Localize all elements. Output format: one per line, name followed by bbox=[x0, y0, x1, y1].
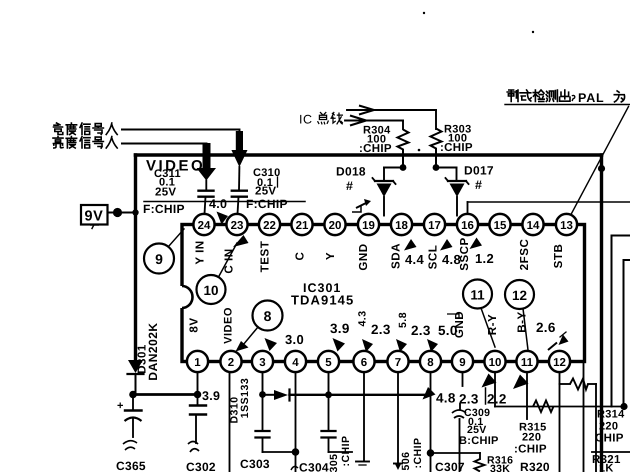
svg-text:CHIP: CHIP bbox=[595, 433, 624, 445]
svg-text:C365: C365 bbox=[116, 459, 146, 472]
svg-text:2.6: 2.6 bbox=[536, 320, 556, 335]
svg-text::CHIP: :CHIP bbox=[412, 437, 424, 468]
svg-text:SCL: SCL bbox=[427, 245, 440, 270]
svg-text:2FSC: 2FSC bbox=[518, 239, 531, 271]
svg-text::CHIP: :CHIP bbox=[359, 143, 392, 155]
svg-text:B-Y: B-Y bbox=[516, 311, 529, 332]
svg-text:STB: STB bbox=[552, 244, 565, 269]
svg-text:3.0: 3.0 bbox=[285, 332, 304, 347]
svg-text:14: 14 bbox=[527, 220, 540, 232]
svg-text:17: 17 bbox=[428, 220, 441, 232]
svg-text:2.3: 2.3 bbox=[371, 322, 391, 337]
svg-text:4.8: 4.8 bbox=[436, 391, 456, 406]
svg-text:24: 24 bbox=[198, 220, 211, 232]
svg-text:18: 18 bbox=[395, 220, 408, 232]
svg-text:5: 5 bbox=[325, 357, 332, 369]
svg-text:C307: C307 bbox=[435, 460, 465, 472]
svg-text:3: 3 bbox=[259, 357, 265, 369]
svg-text:7: 7 bbox=[395, 357, 401, 369]
svg-text:22: 22 bbox=[263, 220, 276, 232]
svg-text:SDA: SDA bbox=[390, 243, 403, 269]
svg-text:21: 21 bbox=[296, 220, 309, 232]
svg-text:23: 23 bbox=[231, 220, 244, 232]
svg-text::CHIP: :CHIP bbox=[514, 444, 547, 456]
svg-text:#: # bbox=[475, 178, 482, 192]
svg-text:SSCP: SSCP bbox=[458, 237, 471, 271]
svg-text:1: 1 bbox=[194, 357, 201, 369]
svg-text:6: 6 bbox=[361, 357, 367, 369]
svg-text:F:CHIP: F:CHIP bbox=[143, 202, 185, 216]
svg-text:20: 20 bbox=[329, 220, 342, 232]
svg-text:2.3: 2.3 bbox=[411, 323, 431, 338]
svg-text:2.2: 2.2 bbox=[487, 392, 507, 407]
svg-text:#: # bbox=[346, 179, 353, 193]
svg-text:11: 11 bbox=[470, 288, 485, 303]
svg-text:10: 10 bbox=[203, 283, 218, 298]
svg-text:15: 15 bbox=[494, 220, 507, 232]
svg-text:DAN202K: DAN202K bbox=[146, 322, 160, 380]
svg-text:4.0: 4.0 bbox=[209, 197, 227, 211]
svg-text:TDA9145: TDA9145 bbox=[291, 293, 354, 308]
svg-text:16: 16 bbox=[461, 220, 474, 232]
svg-text:9: 9 bbox=[155, 251, 163, 267]
svg-text:D017: D017 bbox=[464, 164, 494, 178]
svg-text:13: 13 bbox=[560, 220, 573, 232]
svg-text:R314: R314 bbox=[597, 409, 625, 421]
svg-text:33K: 33K bbox=[490, 463, 510, 472]
svg-text:5.8: 5.8 bbox=[397, 312, 409, 328]
svg-text:D018: D018 bbox=[336, 165, 366, 179]
svg-text:12: 12 bbox=[512, 288, 527, 303]
svg-text:C303: C303 bbox=[240, 457, 270, 471]
svg-text:4: 4 bbox=[292, 357, 299, 369]
svg-text:25V: 25V bbox=[155, 187, 176, 199]
svg-text:5.0: 5.0 bbox=[438, 323, 458, 338]
svg-text:2: 2 bbox=[228, 357, 234, 369]
svg-text:11: 11 bbox=[521, 357, 534, 369]
svg-text:4.3: 4.3 bbox=[357, 310, 369, 326]
svg-text:B:CHIP: B:CHIP bbox=[459, 435, 499, 447]
svg-text:1.2: 1.2 bbox=[475, 251, 494, 266]
svg-text:220: 220 bbox=[522, 432, 541, 444]
svg-text:506: 506 bbox=[400, 451, 412, 470]
svg-text:VIDEO: VIDEO bbox=[223, 307, 235, 344]
svg-text:19: 19 bbox=[362, 220, 375, 232]
svg-text:TEST: TEST bbox=[259, 241, 272, 273]
svg-text:3.9: 3.9 bbox=[202, 389, 220, 403]
svg-text:3.9: 3.9 bbox=[330, 321, 350, 336]
svg-text:9: 9 bbox=[459, 357, 465, 369]
svg-text:12: 12 bbox=[553, 357, 566, 369]
svg-text:220: 220 bbox=[599, 421, 618, 433]
svg-text:Y IN: Y IN bbox=[194, 240, 207, 264]
svg-text:PAL: PAL bbox=[578, 91, 604, 105]
svg-text:8: 8 bbox=[264, 308, 272, 324]
svg-text::CHIP: :CHIP bbox=[440, 142, 473, 154]
svg-text:1K: 1K bbox=[599, 463, 614, 472]
svg-text:C: C bbox=[294, 251, 307, 260]
svg-text:8: 8 bbox=[427, 357, 434, 369]
svg-text:IC: IC bbox=[299, 113, 313, 127]
svg-text:4.4: 4.4 bbox=[405, 252, 424, 267]
svg-text:C IN: C IN bbox=[223, 248, 236, 273]
svg-text:+: + bbox=[117, 400, 124, 412]
svg-text::CHIP: :CHIP bbox=[340, 435, 352, 466]
svg-text:C304: C304 bbox=[299, 461, 329, 472]
svg-text:Y: Y bbox=[324, 252, 337, 260]
svg-text:F:CHIP: F:CHIP bbox=[246, 197, 288, 211]
svg-text:C302: C302 bbox=[186, 460, 216, 472]
svg-text:GND: GND bbox=[357, 243, 370, 270]
svg-text:1SS133: 1SS133 bbox=[239, 378, 251, 418]
svg-text:R-Y: R-Y bbox=[486, 314, 499, 335]
svg-text:10: 10 bbox=[489, 357, 502, 369]
svg-text:R320: R320 bbox=[520, 460, 550, 472]
svg-text:8V: 8V bbox=[188, 317, 201, 332]
svg-text:2.3: 2.3 bbox=[459, 392, 479, 407]
svg-text:9V: 9V bbox=[85, 209, 104, 225]
svg-text:25V: 25V bbox=[255, 186, 276, 198]
svg-text:305: 305 bbox=[328, 453, 340, 472]
